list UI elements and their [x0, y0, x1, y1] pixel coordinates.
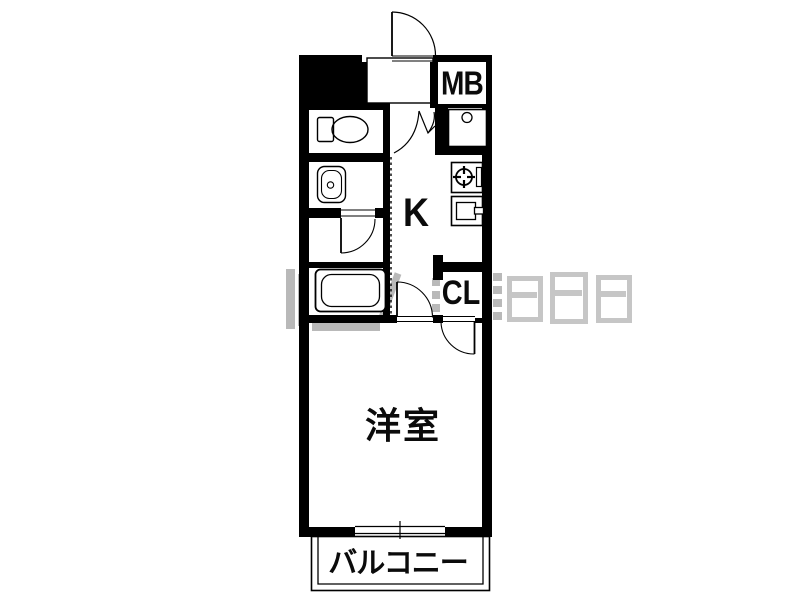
folding-door-icon — [394, 111, 435, 153]
wall-segment — [299, 527, 355, 537]
wall-segment — [299, 153, 390, 162]
kitchen-door-swing-arc — [397, 282, 433, 318]
bath-door-swing-arc — [341, 219, 375, 253]
gas-stove-icon — [452, 163, 483, 193]
toilet-bowl — [332, 117, 368, 143]
wall-segment — [308, 55, 367, 103]
wall-segment — [299, 262, 385, 268]
washbasin-bowl — [322, 171, 342, 199]
sink-faucet — [475, 208, 484, 215]
wall-segment — [435, 262, 492, 272]
western-room-label: 洋室 — [365, 408, 441, 444]
washbasin-icon — [318, 167, 346, 203]
entrance-floor — [367, 58, 433, 103]
utility-sink-icon — [449, 110, 487, 147]
balcony-label: バルコニー — [328, 550, 467, 579]
floor-plan: MB K CL 洋室 バルコニー — [0, 0, 800, 600]
wall-segment — [435, 147, 487, 155]
wall-segment — [445, 527, 492, 537]
closet-label: CL — [442, 276, 481, 310]
wall-segment — [299, 55, 309, 537]
folding-door-panels — [419, 111, 435, 133]
plan-drawing — [0, 0, 800, 600]
wall-segment — [299, 315, 397, 323]
folding-door-arc — [394, 111, 419, 153]
wall-segment — [299, 103, 390, 110]
utility-sink-box — [449, 110, 487, 147]
closet-door-swing-arc — [441, 322, 475, 354]
entrance-door-swing-arc — [392, 12, 436, 56]
washbasin-drain — [327, 182, 333, 188]
toilet-tank — [318, 118, 334, 142]
kitchen-label: K — [403, 193, 429, 233]
kitchen-sink-icon — [452, 197, 484, 226]
toilet-icon — [318, 117, 369, 143]
wall-segment — [433, 315, 443, 323]
bathtub-icon — [316, 270, 386, 312]
meter-box-label: MB — [441, 67, 483, 100]
